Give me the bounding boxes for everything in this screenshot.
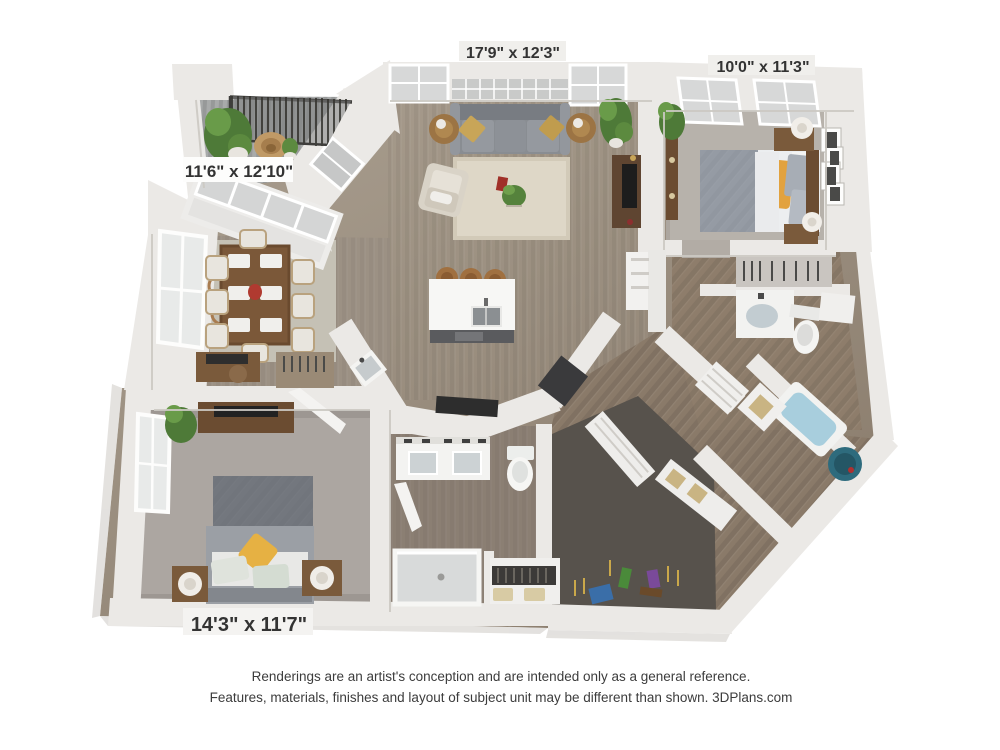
svg-text:Features, materials, finishes: Features, materials, finishes and layout… <box>210 690 793 705</box>
svg-text:Renderings are an artist's con: Renderings are an artist's conception an… <box>252 669 751 684</box>
svg-text:10'0" x 11'3": 10'0" x 11'3" <box>716 59 809 76</box>
svg-text:11'6" x 12'10": 11'6" x 12'10" <box>185 162 293 181</box>
svg-text:14'3" x 11'7": 14'3" x 11'7" <box>191 614 307 636</box>
svg-text:17'9" x 12'3": 17'9" x 12'3" <box>466 45 560 62</box>
